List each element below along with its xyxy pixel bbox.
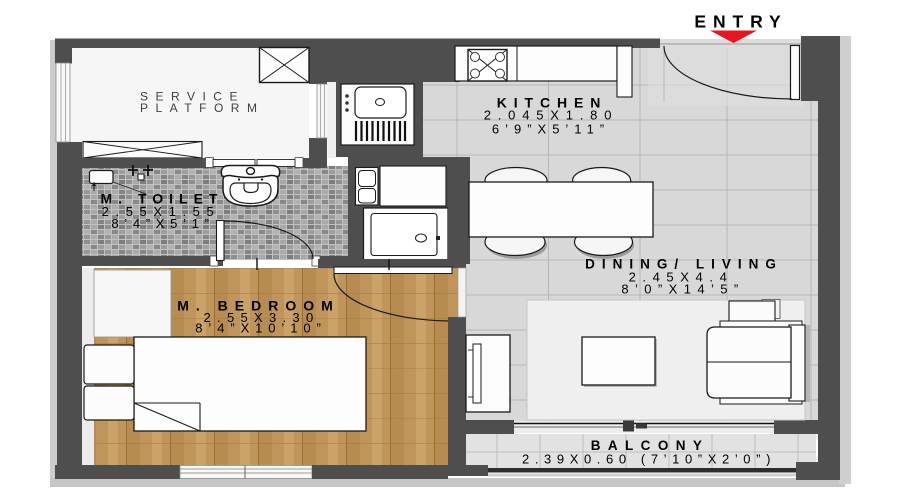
svg-text:ENTRY: ENTRY [694, 12, 787, 32]
svg-text:8’0”X14’5”: 8’0”X14’5” [621, 282, 744, 297]
svg-text:2.39X0.60 (7’10”X2’0”): 2.39X0.60 (7’10”X2’0”) [522, 452, 776, 467]
svg-text:8’4”X5’1”: 8’4”X5’1” [111, 216, 214, 231]
svg-text:8’4”X10’10”: 8’4”X10’10” [195, 321, 326, 336]
svg-text:PLATFORM: PLATFORM [140, 101, 264, 115]
svg-text:6’9”X5’11”: 6’9”X5’11” [492, 122, 610, 137]
svg-text:2.045X1.80: 2.045X1.80 [484, 108, 619, 123]
